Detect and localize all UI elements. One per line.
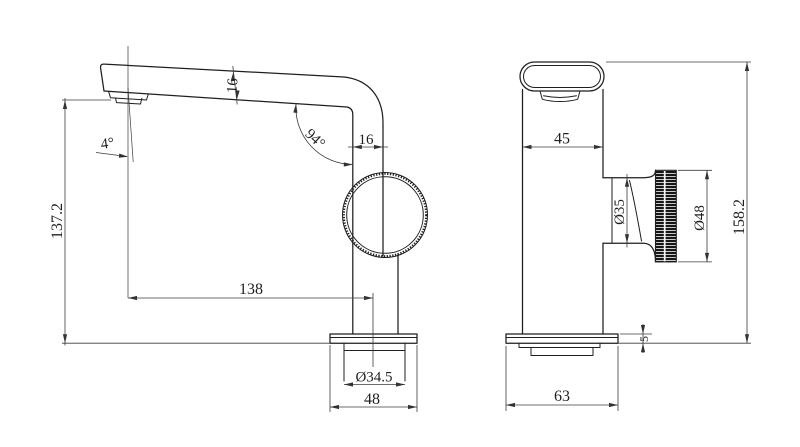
front-view-head — [520, 62, 604, 102]
dimension-labels: 137.2 4° 16 94° 16 138 Ø34.5 48 45 Ø35 Ø… — [49, 77, 748, 408]
dim-overall-height-front-label: 158.2 — [731, 199, 748, 235]
front-view-base — [506, 334, 618, 356]
dim-height-to-spout-label: 137.2 — [49, 203, 66, 239]
side-view-knob — [343, 173, 428, 258]
front-view-body — [523, 90, 604, 335]
knob-outer-circle — [343, 173, 428, 258]
spout-head-outer — [520, 62, 604, 91]
dim-base-width-side-label: 48 — [364, 391, 380, 408]
spout-head-inner — [524, 66, 601, 88]
dim-spout-tilt-angle-label: 4° — [100, 135, 116, 153]
knob-bottom-profile — [603, 243, 656, 262]
dim-shank-diameter-label: Ø34.5 — [355, 370, 392, 386]
aerator-front-inner — [544, 96, 577, 98]
dim-plate-thickness-label: 5 — [637, 336, 651, 342]
dim-bend-angle-label: 94° — [302, 126, 328, 152]
base-plate-side — [330, 334, 417, 343]
dim-neck-width-label: 16 — [359, 132, 375, 148]
knob-inner-circle — [347, 177, 424, 254]
knurl-band-gap — [664, 170, 666, 262]
base-step-2 — [531, 348, 593, 356]
spout-top-outline — [101, 64, 383, 256]
knob-top-profile — [603, 170, 656, 177]
knob-cone-curve — [630, 181, 642, 242]
spout-bottom-outline — [104, 91, 353, 334]
dim-knob-diameter-label: Ø48 — [692, 205, 708, 231]
knurl-band — [656, 170, 677, 262]
knob-knurl-ring — [344, 174, 426, 256]
dim-base-width-front-label: 63 — [554, 388, 570, 405]
technical-drawing: 137.2 4° 16 94° 16 138 Ø34.5 48 45 Ø35 Ø… — [0, 0, 800, 447]
dim-stem-diameter-label: Ø35 — [612, 199, 628, 225]
dim-spout-thickness-label: 16 — [225, 77, 242, 94]
dim-spout-reach-label: 138 — [239, 281, 263, 298]
base-step-1 — [519, 343, 600, 347]
base-plate-front — [506, 334, 618, 343]
side-view — [101, 64, 428, 381]
dimension-lines — [62, 46, 751, 412]
front-view — [506, 62, 676, 356]
drawing-sheet: 137.2 4° 16 94° 16 138 Ø34.5 48 45 Ø35 Ø… — [0, 0, 800, 447]
dimension-arrows — [63, 62, 749, 409]
dim-body-width-label: 45 — [554, 131, 570, 148]
